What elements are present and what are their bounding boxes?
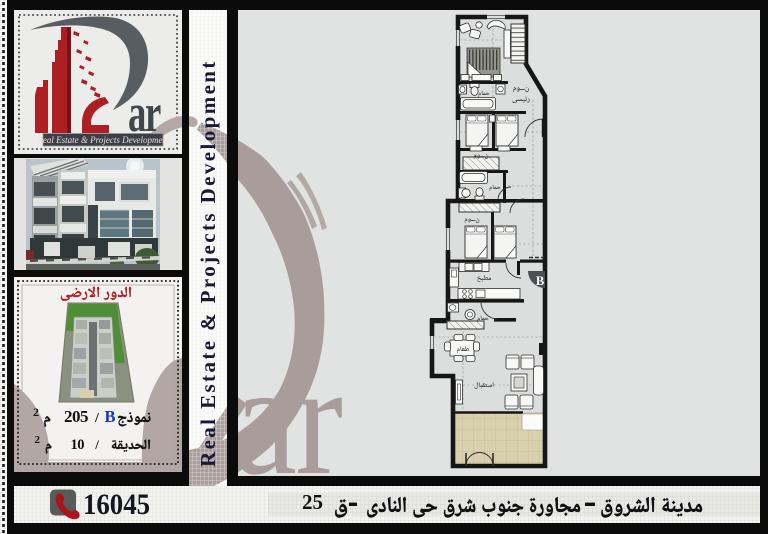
svg-text:16045: 16045 (83, 488, 150, 521)
svg-text:2: 2 (33, 405, 39, 419)
svg-text:Real Estate & Projects Develop: Real Estate & Projects Development (36, 135, 170, 145)
svg-text:Real Estate & Projects Develop: Real Estate & Projects Development (196, 59, 220, 467)
svg-text:2: 2 (35, 434, 41, 446)
svg-text:/: / (94, 437, 99, 452)
svg-text:B: B (536, 274, 544, 288)
svg-text:205: 205 (64, 407, 88, 426)
svg-text:B: B (104, 407, 115, 426)
svg-text:10: 10 (71, 437, 85, 453)
svg-text:25: 25 (302, 490, 323, 514)
